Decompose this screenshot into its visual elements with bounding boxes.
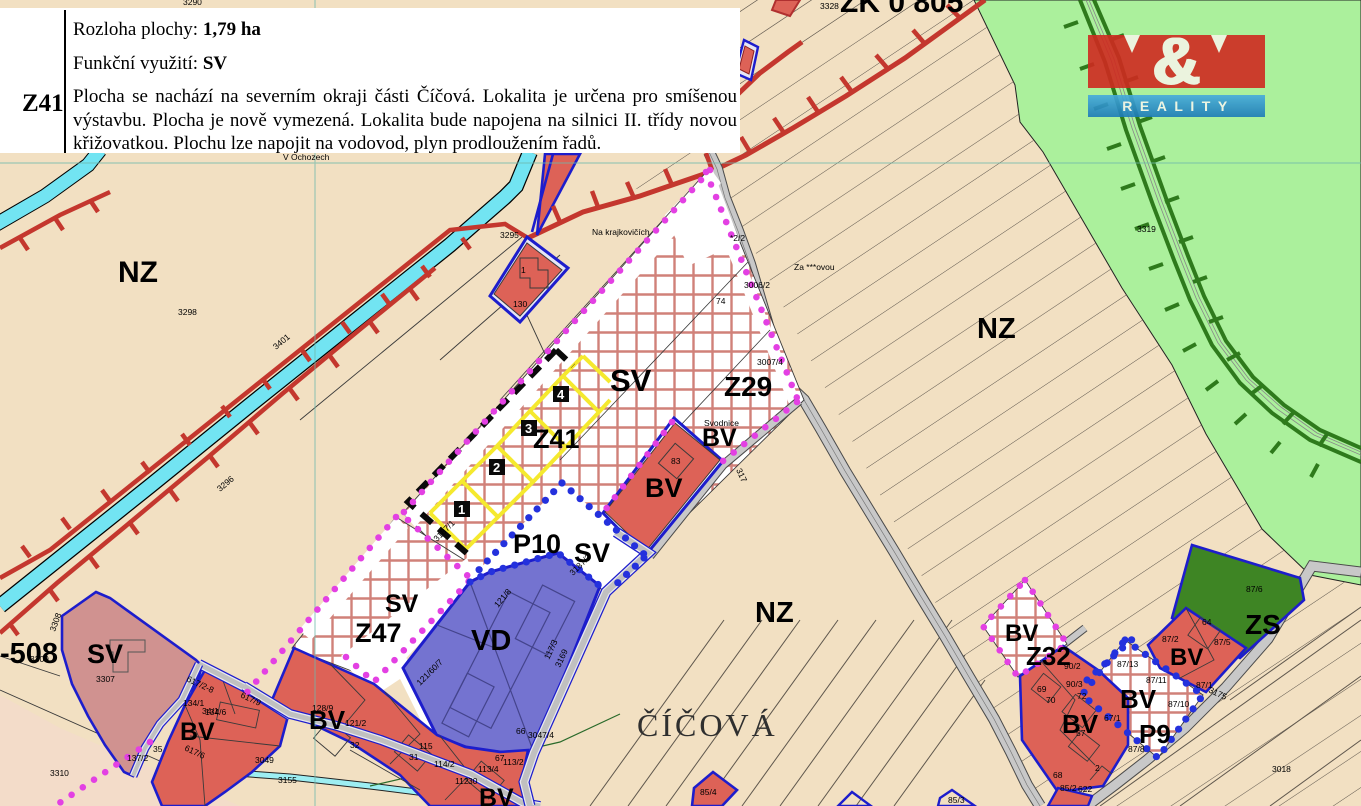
- svg-text:Svodnice: Svodnice: [704, 418, 739, 428]
- svg-text:3290: 3290: [183, 0, 202, 7]
- svg-text:3319: 3319: [1137, 224, 1156, 234]
- svg-text:Na krajkovičích: Na krajkovičích: [592, 227, 650, 237]
- svg-text:121/2: 121/2: [345, 718, 367, 728]
- svg-text:72: 72: [1077, 691, 1087, 701]
- svg-text:66: 66: [516, 726, 526, 736]
- svg-text:87/6: 87/6: [1246, 584, 1263, 594]
- svg-text:69: 69: [1037, 684, 1047, 694]
- svg-text:3309: 3309: [30, 654, 49, 664]
- svg-text:90/3: 90/3: [1066, 679, 1083, 689]
- svg-text:2: 2: [1095, 763, 1100, 773]
- svg-text:128/9: 128/9: [312, 703, 334, 713]
- svg-text:114/2: 114/2: [434, 759, 455, 769]
- svg-text:35: 35: [153, 744, 163, 754]
- svg-text:622: 622: [1078, 784, 1092, 794]
- svg-text:3155: 3155: [278, 775, 297, 785]
- svg-text:1: 1: [521, 265, 526, 275]
- svg-text:112: 112: [455, 776, 469, 786]
- svg-text:3007/4: 3007/4: [757, 357, 783, 367]
- svg-text:BV: BV: [645, 473, 683, 503]
- svg-text:87/10: 87/10: [1168, 699, 1190, 709]
- svg-text:4: 4: [557, 387, 565, 402]
- svg-text:3006/2: 3006/2: [744, 280, 770, 290]
- svg-text:90/2: 90/2: [1064, 661, 1081, 671]
- svg-text:NZ: NZ: [977, 313, 1016, 345]
- svg-text:Z41: Z41: [533, 424, 580, 454]
- svg-text:3307: 3307: [96, 674, 115, 684]
- svg-text:87/5: 87/5: [1214, 637, 1231, 647]
- svg-text:2: 2: [493, 460, 500, 475]
- svg-text:NZ: NZ: [118, 256, 158, 289]
- svg-text:Z47: Z47: [355, 618, 402, 648]
- svg-text:30: 30: [468, 776, 478, 786]
- svg-text:VD: VD: [471, 625, 511, 657]
- svg-text:87/11: 87/11: [1146, 675, 1167, 685]
- svg-text:P10: P10: [513, 529, 561, 559]
- svg-text:87/13: 87/13: [1117, 659, 1139, 669]
- svg-text:32: 32: [350, 740, 360, 750]
- svg-text:3047/4: 3047/4: [528, 730, 554, 740]
- svg-text:BV: BV: [180, 718, 215, 746]
- svg-text:85/4: 85/4: [700, 787, 717, 797]
- svg-text:ZS: ZS: [1245, 609, 1281, 640]
- svg-text:BV: BV: [479, 784, 514, 806]
- svg-text:3049: 3049: [255, 755, 274, 765]
- svg-text:BV: BV: [1120, 684, 1157, 714]
- svg-text:67: 67: [495, 753, 505, 763]
- svg-text:85/3: 85/3: [948, 795, 965, 805]
- svg-text:85/2: 85/2: [1060, 783, 1077, 793]
- svg-text:74: 74: [716, 296, 726, 306]
- svg-text:3310: 3310: [50, 768, 69, 778]
- svg-text:130: 130: [513, 299, 527, 309]
- svg-text:3: 3: [525, 421, 532, 436]
- svg-text:3328: 3328: [820, 1, 839, 11]
- svg-text:83: 83: [671, 456, 681, 466]
- svg-text:3018: 3018: [1272, 764, 1291, 774]
- svg-text:68: 68: [1053, 770, 1063, 780]
- svg-text:3295: 3295: [500, 230, 519, 240]
- svg-text:113/4: 113/4: [478, 764, 499, 774]
- svg-text:Z29: Z29: [724, 371, 772, 402]
- svg-text:113/2: 113/2: [503, 757, 524, 767]
- svg-text:67/1: 67/1: [1104, 713, 1121, 723]
- svg-text:137/2: 137/2: [127, 753, 149, 763]
- svg-text:SV: SV: [87, 639, 123, 669]
- svg-text:BV: BV: [1170, 644, 1203, 671]
- svg-text:87/8: 87/8: [1128, 744, 1145, 754]
- svg-text:64: 64: [1202, 617, 1212, 627]
- svg-text:*2/2: *2/2: [730, 233, 745, 243]
- svg-text:ZK 0 805: ZK 0 805: [840, 0, 963, 19]
- svg-text:87/2: 87/2: [1162, 634, 1179, 644]
- svg-text:ČÍČOVÁ: ČÍČOVÁ: [637, 707, 778, 743]
- svg-text:57: 57: [1076, 728, 1086, 738]
- svg-text:3298: 3298: [178, 307, 197, 317]
- svg-text:Za ***ovou: Za ***ovou: [794, 262, 835, 272]
- svg-text:115: 115: [419, 741, 433, 751]
- svg-text:31: 31: [409, 752, 419, 762]
- svg-text:NZ: NZ: [755, 597, 794, 629]
- svg-text:BV: BV: [702, 424, 737, 452]
- svg-text:SV: SV: [385, 590, 419, 618]
- svg-text:34/1: 34/1: [202, 706, 219, 716]
- svg-text:SV: SV: [610, 363, 652, 398]
- svg-text:70: 70: [1046, 695, 1056, 705]
- svg-text:1: 1: [458, 502, 465, 517]
